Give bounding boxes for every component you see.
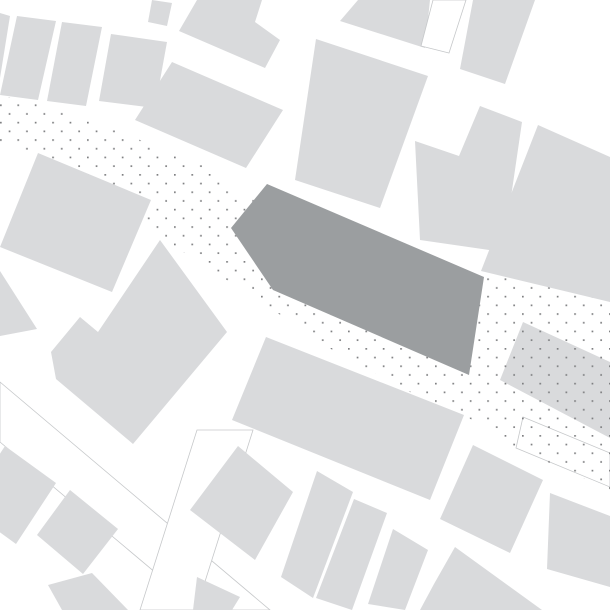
building-n-notch (179, 0, 280, 68)
building-s-row-4 (368, 529, 428, 610)
building-se-mid (440, 445, 543, 553)
building-se-bottom (420, 547, 542, 610)
building-nw-2 (0, 16, 56, 100)
site-plan-viewport (0, 0, 610, 610)
building-west-sliver (0, 271, 37, 336)
building-n-5 (340, 0, 430, 48)
building-sw-3 (48, 573, 128, 610)
building-se-right (547, 493, 610, 587)
building-nw-3 (47, 22, 102, 106)
building-center-north (295, 39, 428, 208)
site-plan-map[interactable] (0, 0, 610, 610)
building-ne-1 (460, 0, 535, 84)
building-n-stub (148, 0, 172, 26)
